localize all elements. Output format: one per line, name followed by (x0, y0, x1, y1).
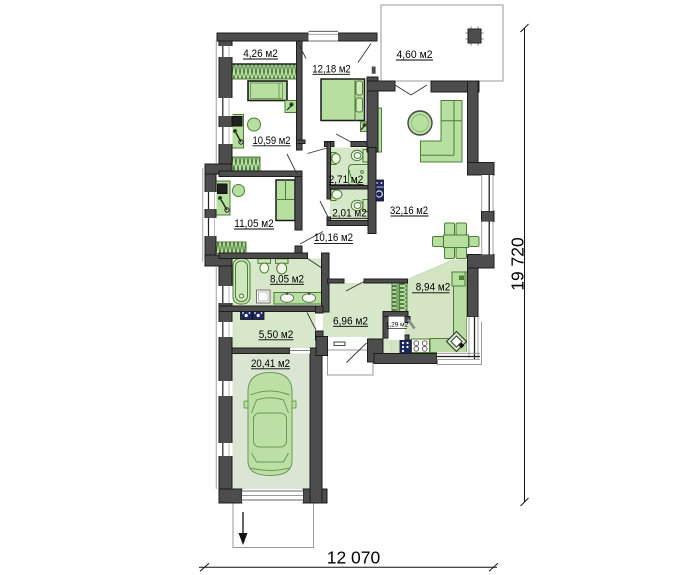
svg-text:10,59 м2: 10,59 м2 (253, 135, 291, 147)
svg-text:2,01 м2: 2,01 м2 (332, 208, 367, 220)
svg-text:1,29 м2: 1,29 м2 (386, 322, 409, 329)
svg-text:6,96 м2: 6,96 м2 (333, 316, 368, 328)
svg-text:5,50 м2: 5,50 м2 (259, 329, 294, 341)
svg-text:19 720: 19 720 (508, 237, 528, 291)
svg-text:8,94 м2: 8,94 м2 (416, 282, 451, 294)
svg-text:4,26 м2: 4,26 м2 (243, 48, 278, 60)
svg-text:11,05 м2: 11,05 м2 (234, 218, 274, 230)
svg-text:12 070: 12 070 (327, 548, 381, 568)
svg-text:32,16 м2: 32,16 м2 (390, 205, 428, 217)
svg-text:10,16 м2: 10,16 м2 (314, 232, 353, 244)
svg-text:2,71 м2: 2,71 м2 (329, 174, 364, 186)
svg-text:12,18 м2: 12,18 м2 (312, 64, 351, 76)
svg-text:8,05 м2: 8,05 м2 (270, 274, 304, 286)
svg-text:20,41 м2: 20,41 м2 (251, 358, 290, 370)
svg-text:4,60 м2: 4,60 м2 (397, 49, 433, 61)
